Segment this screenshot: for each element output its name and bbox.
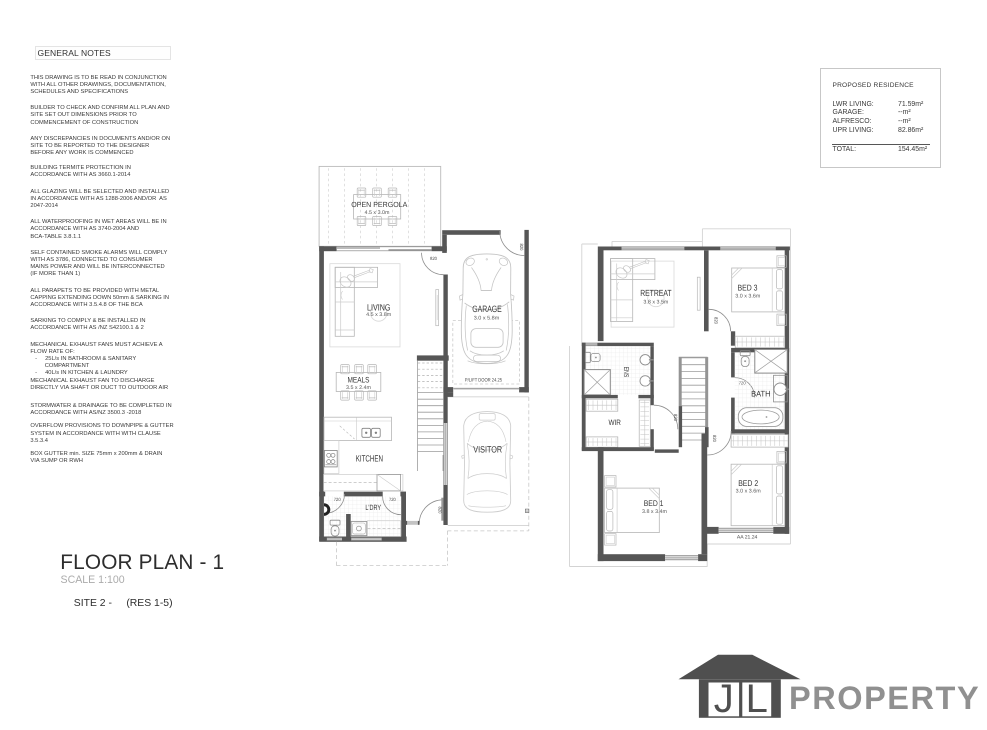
svg-text:MEALS: MEALS	[348, 375, 370, 384]
svg-text:BED 2: BED 2	[738, 478, 758, 488]
svg-text:820: 820	[714, 317, 719, 324]
svg-text:D: D	[526, 509, 528, 513]
svg-text:WIR: WIR	[608, 418, 621, 427]
svg-text:820: 820	[712, 435, 717, 442]
svg-text:KITCHEN: KITCHEN	[356, 453, 383, 463]
svg-text:OPEN PERGOLA: OPEN PERGOLA	[351, 200, 407, 209]
svg-text:ENS: ENS	[622, 367, 629, 378]
svg-text:3.5 x 2.4m: 3.5 x 2.4m	[346, 385, 372, 391]
svg-text:3.8 x 3.5m: 3.8 x 3.5m	[643, 300, 669, 306]
svg-text:RETREAT: RETREAT	[640, 288, 672, 298]
svg-text:820: 820	[519, 244, 524, 251]
svg-text:BATH: BATH	[751, 390, 771, 399]
svg-text:820: 820	[430, 256, 437, 261]
svg-text:4.5 x 3.8m: 4.5 x 3.8m	[366, 312, 392, 318]
svg-text:PROPERTY: PROPERTY	[789, 680, 980, 716]
svg-text:720: 720	[389, 497, 396, 502]
svg-text:J: J	[714, 677, 734, 721]
svg-text:820: 820	[673, 414, 678, 421]
svg-text:4.5 x 3.0m: 4.5 x 3.0m	[365, 210, 391, 216]
svg-text:820: 820	[438, 507, 443, 514]
svg-text:L'DRY: L'DRY	[365, 503, 381, 512]
svg-text:3.0 x 3.6m: 3.0 x 3.6m	[736, 489, 762, 495]
svg-text:3.8 x 3.4m: 3.8 x 3.4m	[642, 509, 668, 515]
svg-text:3.0 x 5.8m: 3.0 x 5.8m	[474, 315, 500, 321]
svg-text:GARAGE: GARAGE	[472, 304, 502, 314]
svg-text:3.0 x 3.6m: 3.0 x 3.6m	[735, 293, 761, 299]
svg-text:720: 720	[334, 497, 341, 502]
svg-text:BED 1: BED 1	[644, 499, 664, 508]
svg-text:P/LIFT DOOR 24.25: P/LIFT DOOR 24.25	[465, 378, 502, 384]
svg-text:AA 21.24: AA 21.24	[737, 534, 758, 540]
svg-text:BED 3: BED 3	[738, 282, 758, 292]
svg-text:LIVING: LIVING	[367, 303, 390, 313]
svg-text:VISITOR: VISITOR	[473, 445, 502, 455]
svg-text:L: L	[746, 677, 768, 721]
